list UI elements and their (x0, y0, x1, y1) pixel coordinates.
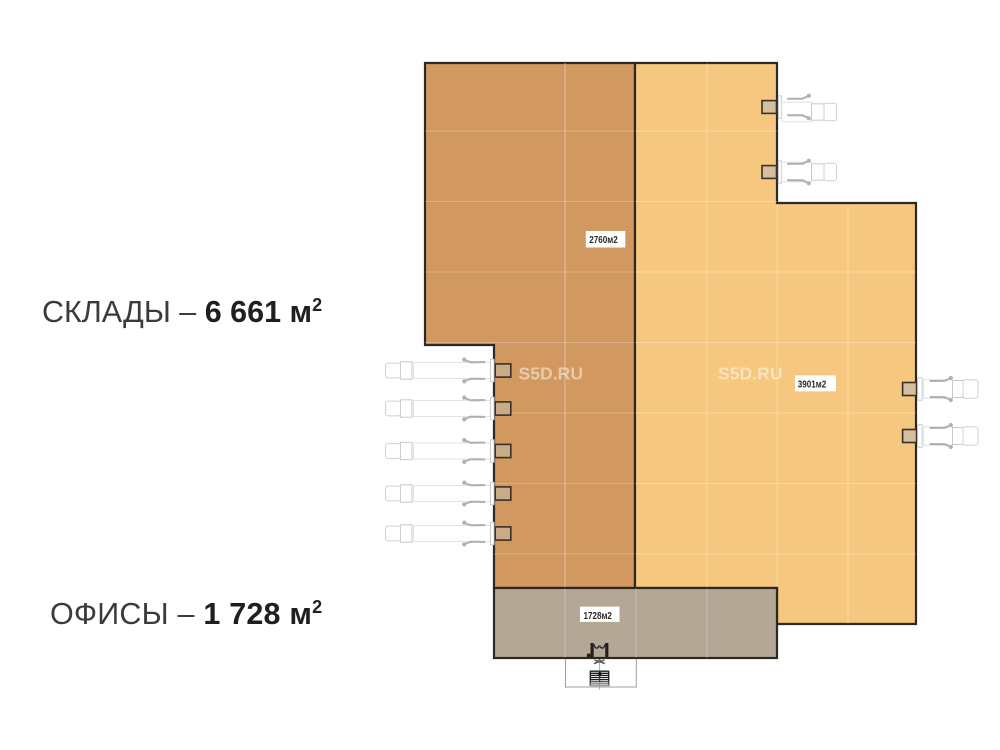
svg-text:2760м2: 2760м2 (589, 234, 618, 246)
svg-text:S5D.RU: S5D.RU (519, 364, 584, 384)
svg-text:3901м2: 3901м2 (798, 378, 827, 390)
svg-text:1728м2: 1728м2 (583, 610, 612, 622)
svg-text:S5D.RU: S5D.RU (718, 364, 783, 384)
